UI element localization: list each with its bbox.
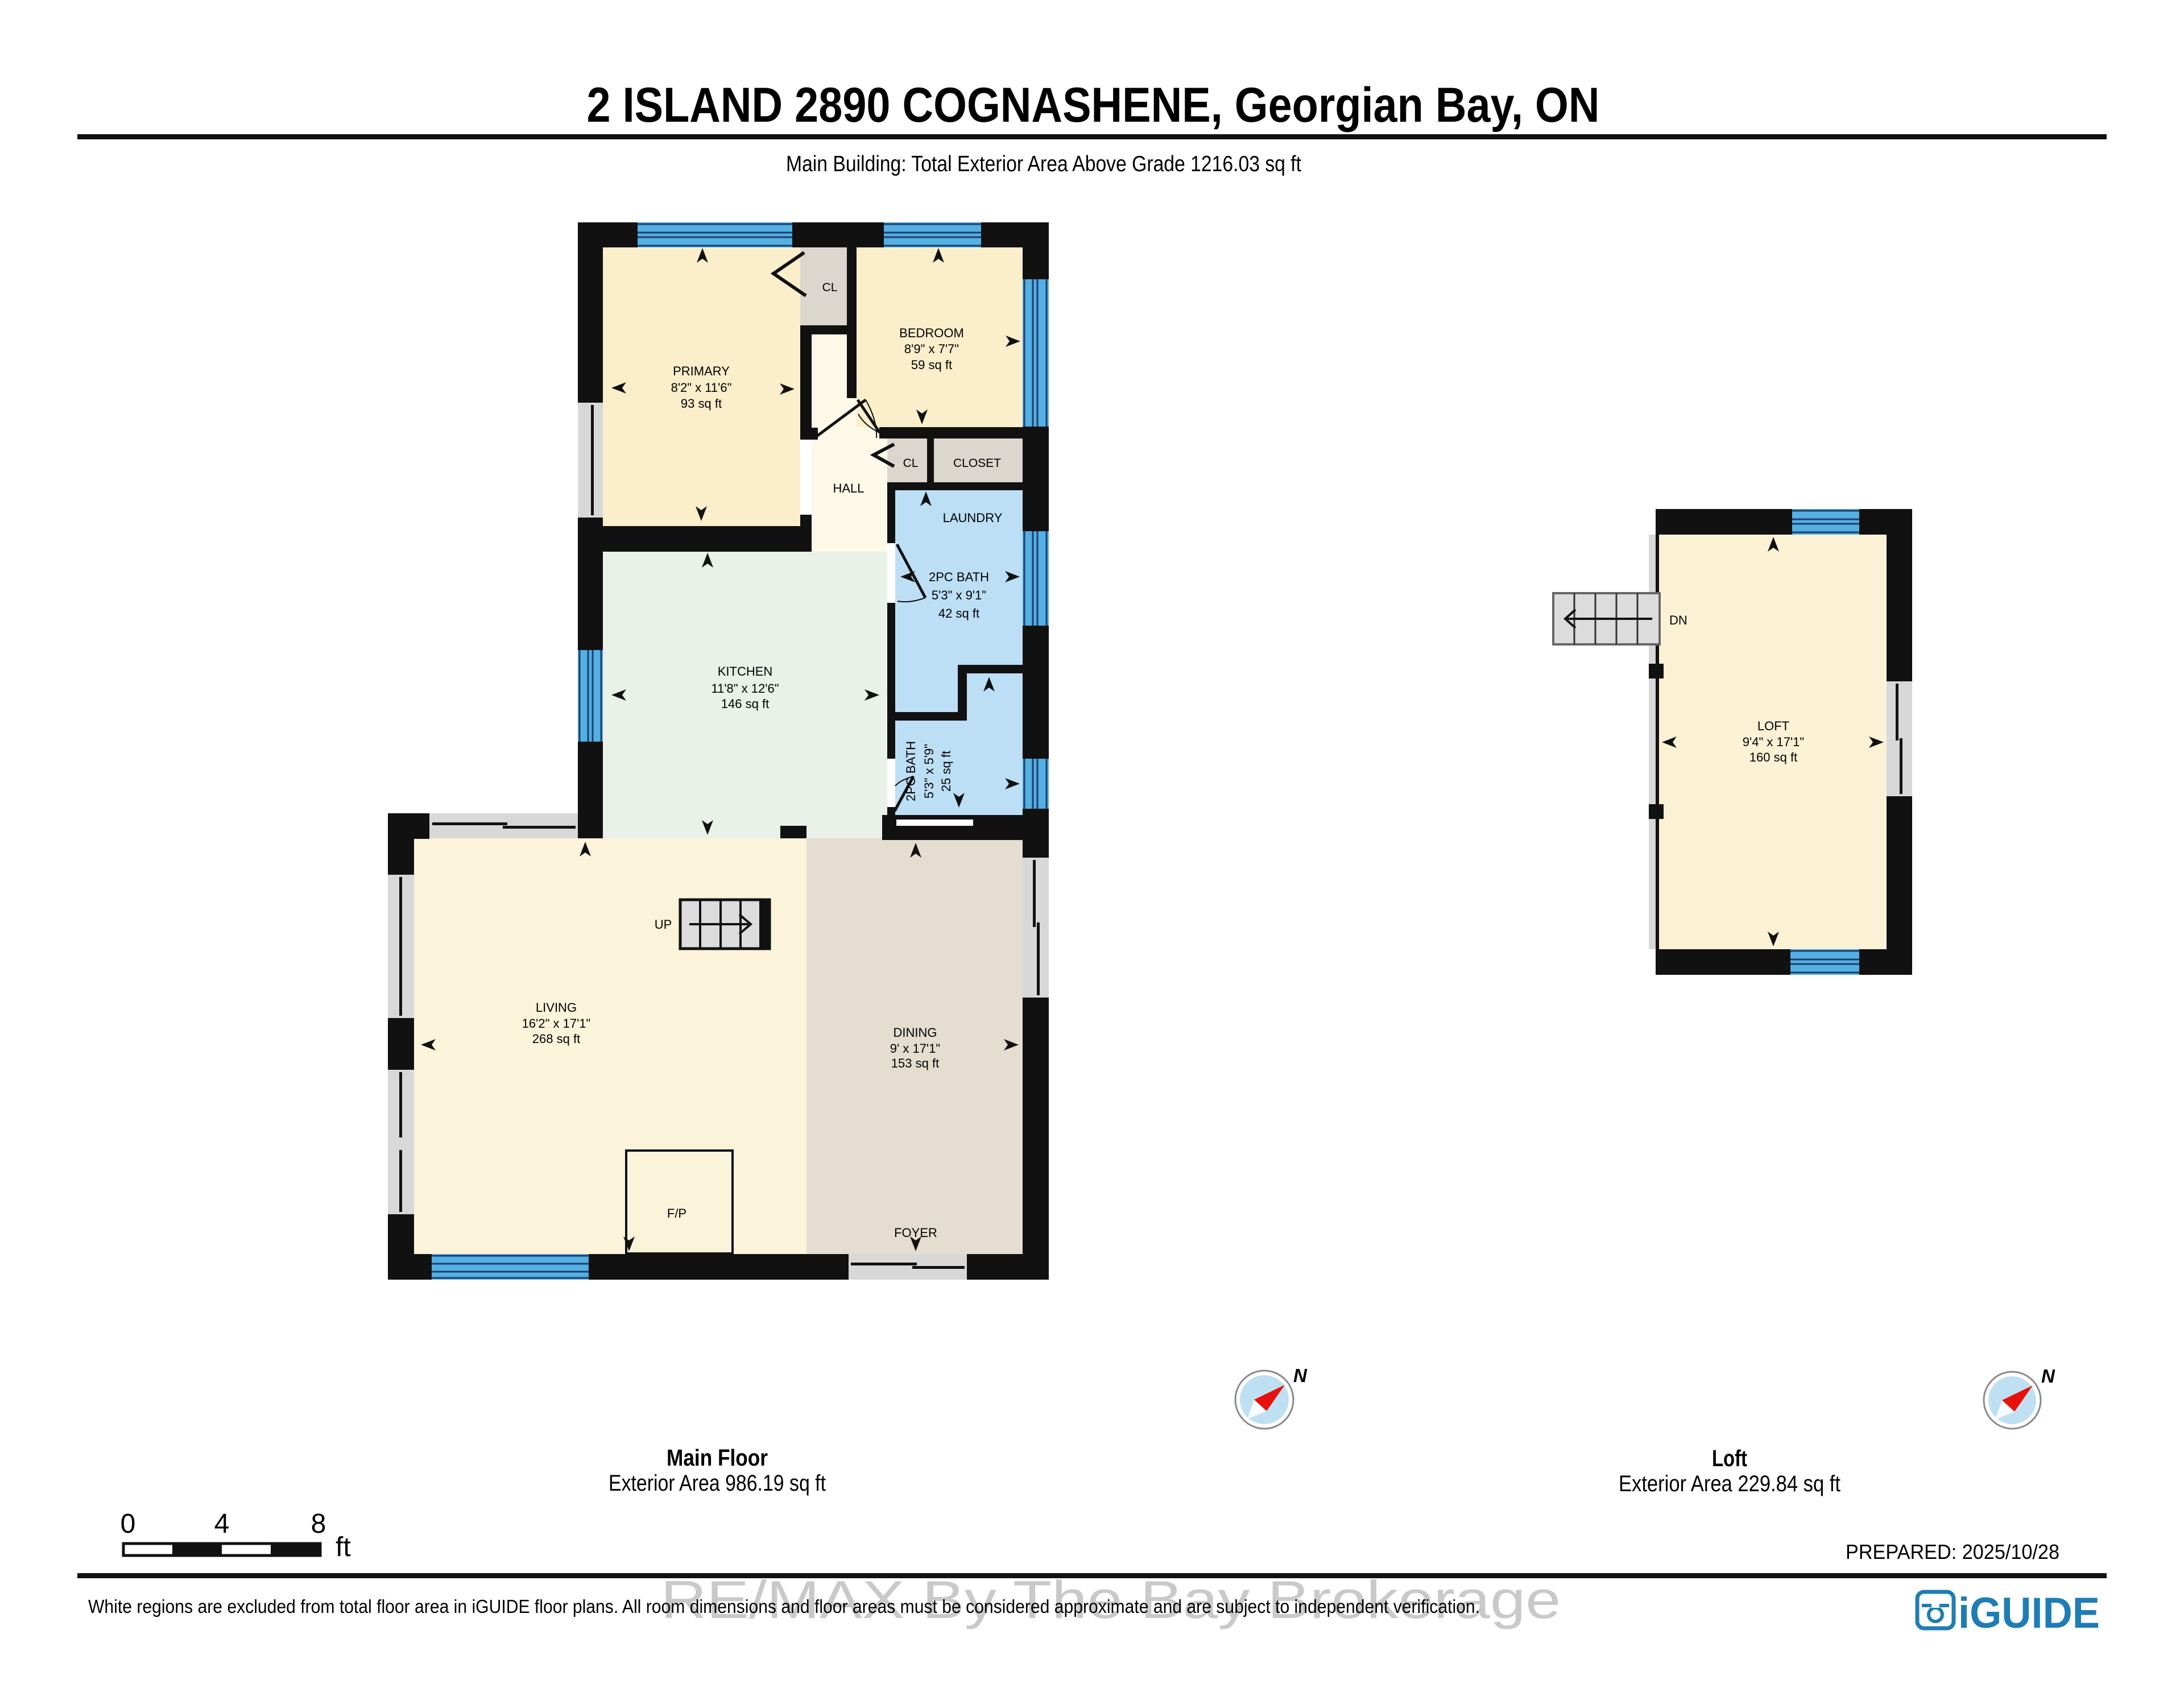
- svg-text:5'3" x 5'9": 5'3" x 5'9": [922, 744, 936, 799]
- svg-text:42 sq ft: 42 sq ft: [938, 606, 979, 620]
- svg-text:LIVING: LIVING: [536, 1000, 577, 1015]
- svg-text:KITCHEN: KITCHEN: [718, 664, 773, 678]
- svg-text:CL: CL: [822, 281, 838, 294]
- svg-text:CLOSET: CLOSET: [953, 457, 1001, 470]
- svg-text:PRIMARY: PRIMARY: [673, 364, 730, 378]
- svg-text:268 sq ft: 268 sq ft: [532, 1032, 580, 1046]
- svg-text:PREPARED: 2025/10/28: PREPARED: 2025/10/28: [1846, 1540, 2059, 1563]
- svg-text:DN: DN: [1669, 613, 1687, 627]
- svg-text:16'2" x 17'1": 16'2" x 17'1": [522, 1016, 591, 1031]
- svg-text:N: N: [2041, 1366, 2055, 1387]
- svg-text:2 ISLAND 2890 COGNASHENE, Geor: 2 ISLAND 2890 COGNASHENE, Georgian Bay, …: [587, 78, 1600, 133]
- svg-text:iGUIDE: iGUIDE: [1958, 1589, 2100, 1637]
- svg-text:8: 8: [311, 1509, 326, 1539]
- svg-text:153 sq ft: 153 sq ft: [891, 1056, 939, 1070]
- svg-text:160 sq ft: 160 sq ft: [1749, 750, 1797, 764]
- svg-text:ft: ft: [336, 1532, 351, 1562]
- svg-text:Loft: Loft: [1712, 1445, 1747, 1471]
- svg-text:9' x 17'1": 9' x 17'1": [890, 1041, 940, 1056]
- svg-text:0: 0: [121, 1509, 136, 1539]
- svg-text:N: N: [1293, 1365, 1308, 1386]
- svg-text:146 sq ft: 146 sq ft: [721, 697, 769, 711]
- svg-text:4: 4: [214, 1509, 230, 1539]
- svg-text:9'4" x 17'1": 9'4" x 17'1": [1743, 735, 1804, 749]
- svg-text:93 sq ft: 93 sq ft: [681, 396, 722, 411]
- svg-text:FOYER: FOYER: [894, 1226, 937, 1240]
- svg-text:8'9" x 7'7": 8'9" x 7'7": [904, 342, 959, 356]
- svg-text:Exterior Area 986.19 sq ft: Exterior Area 986.19 sq ft: [609, 1471, 826, 1496]
- svg-text:5'3" x 9'1": 5'3" x 9'1": [932, 588, 986, 602]
- svg-text:2PC BATH: 2PC BATH: [929, 570, 989, 584]
- svg-text:HALL: HALL: [833, 481, 864, 495]
- svg-text:White regions are excluded fro: White regions are excluded from total fl…: [88, 1596, 1480, 1617]
- svg-text:LAUNDRY: LAUNDRY: [943, 511, 1003, 525]
- svg-text:Main Building: Total Exterior: Main Building: Total Exterior Area Above…: [786, 152, 1301, 176]
- svg-text:11'8" x 12'6": 11'8" x 12'6": [711, 681, 779, 696]
- svg-text:2PC BATH: 2PC BATH: [904, 741, 918, 801]
- svg-text:Exterior Area 229.84 sq ft: Exterior Area 229.84 sq ft: [1619, 1471, 1840, 1496]
- svg-text:F/P: F/P: [667, 1206, 686, 1221]
- svg-text:Main Floor: Main Floor: [667, 1445, 768, 1471]
- svg-text:UP: UP: [655, 917, 672, 932]
- svg-text:8'2" x 11'6": 8'2" x 11'6": [671, 380, 732, 395]
- svg-text:25 sq ft: 25 sq ft: [939, 751, 953, 792]
- svg-text:CL: CL: [903, 457, 919, 470]
- svg-text:LOFT: LOFT: [1757, 719, 1789, 733]
- svg-text:BEDROOM: BEDROOM: [899, 326, 964, 340]
- svg-text:59 sq ft: 59 sq ft: [911, 358, 952, 372]
- svg-text:DINING: DINING: [894, 1025, 937, 1040]
